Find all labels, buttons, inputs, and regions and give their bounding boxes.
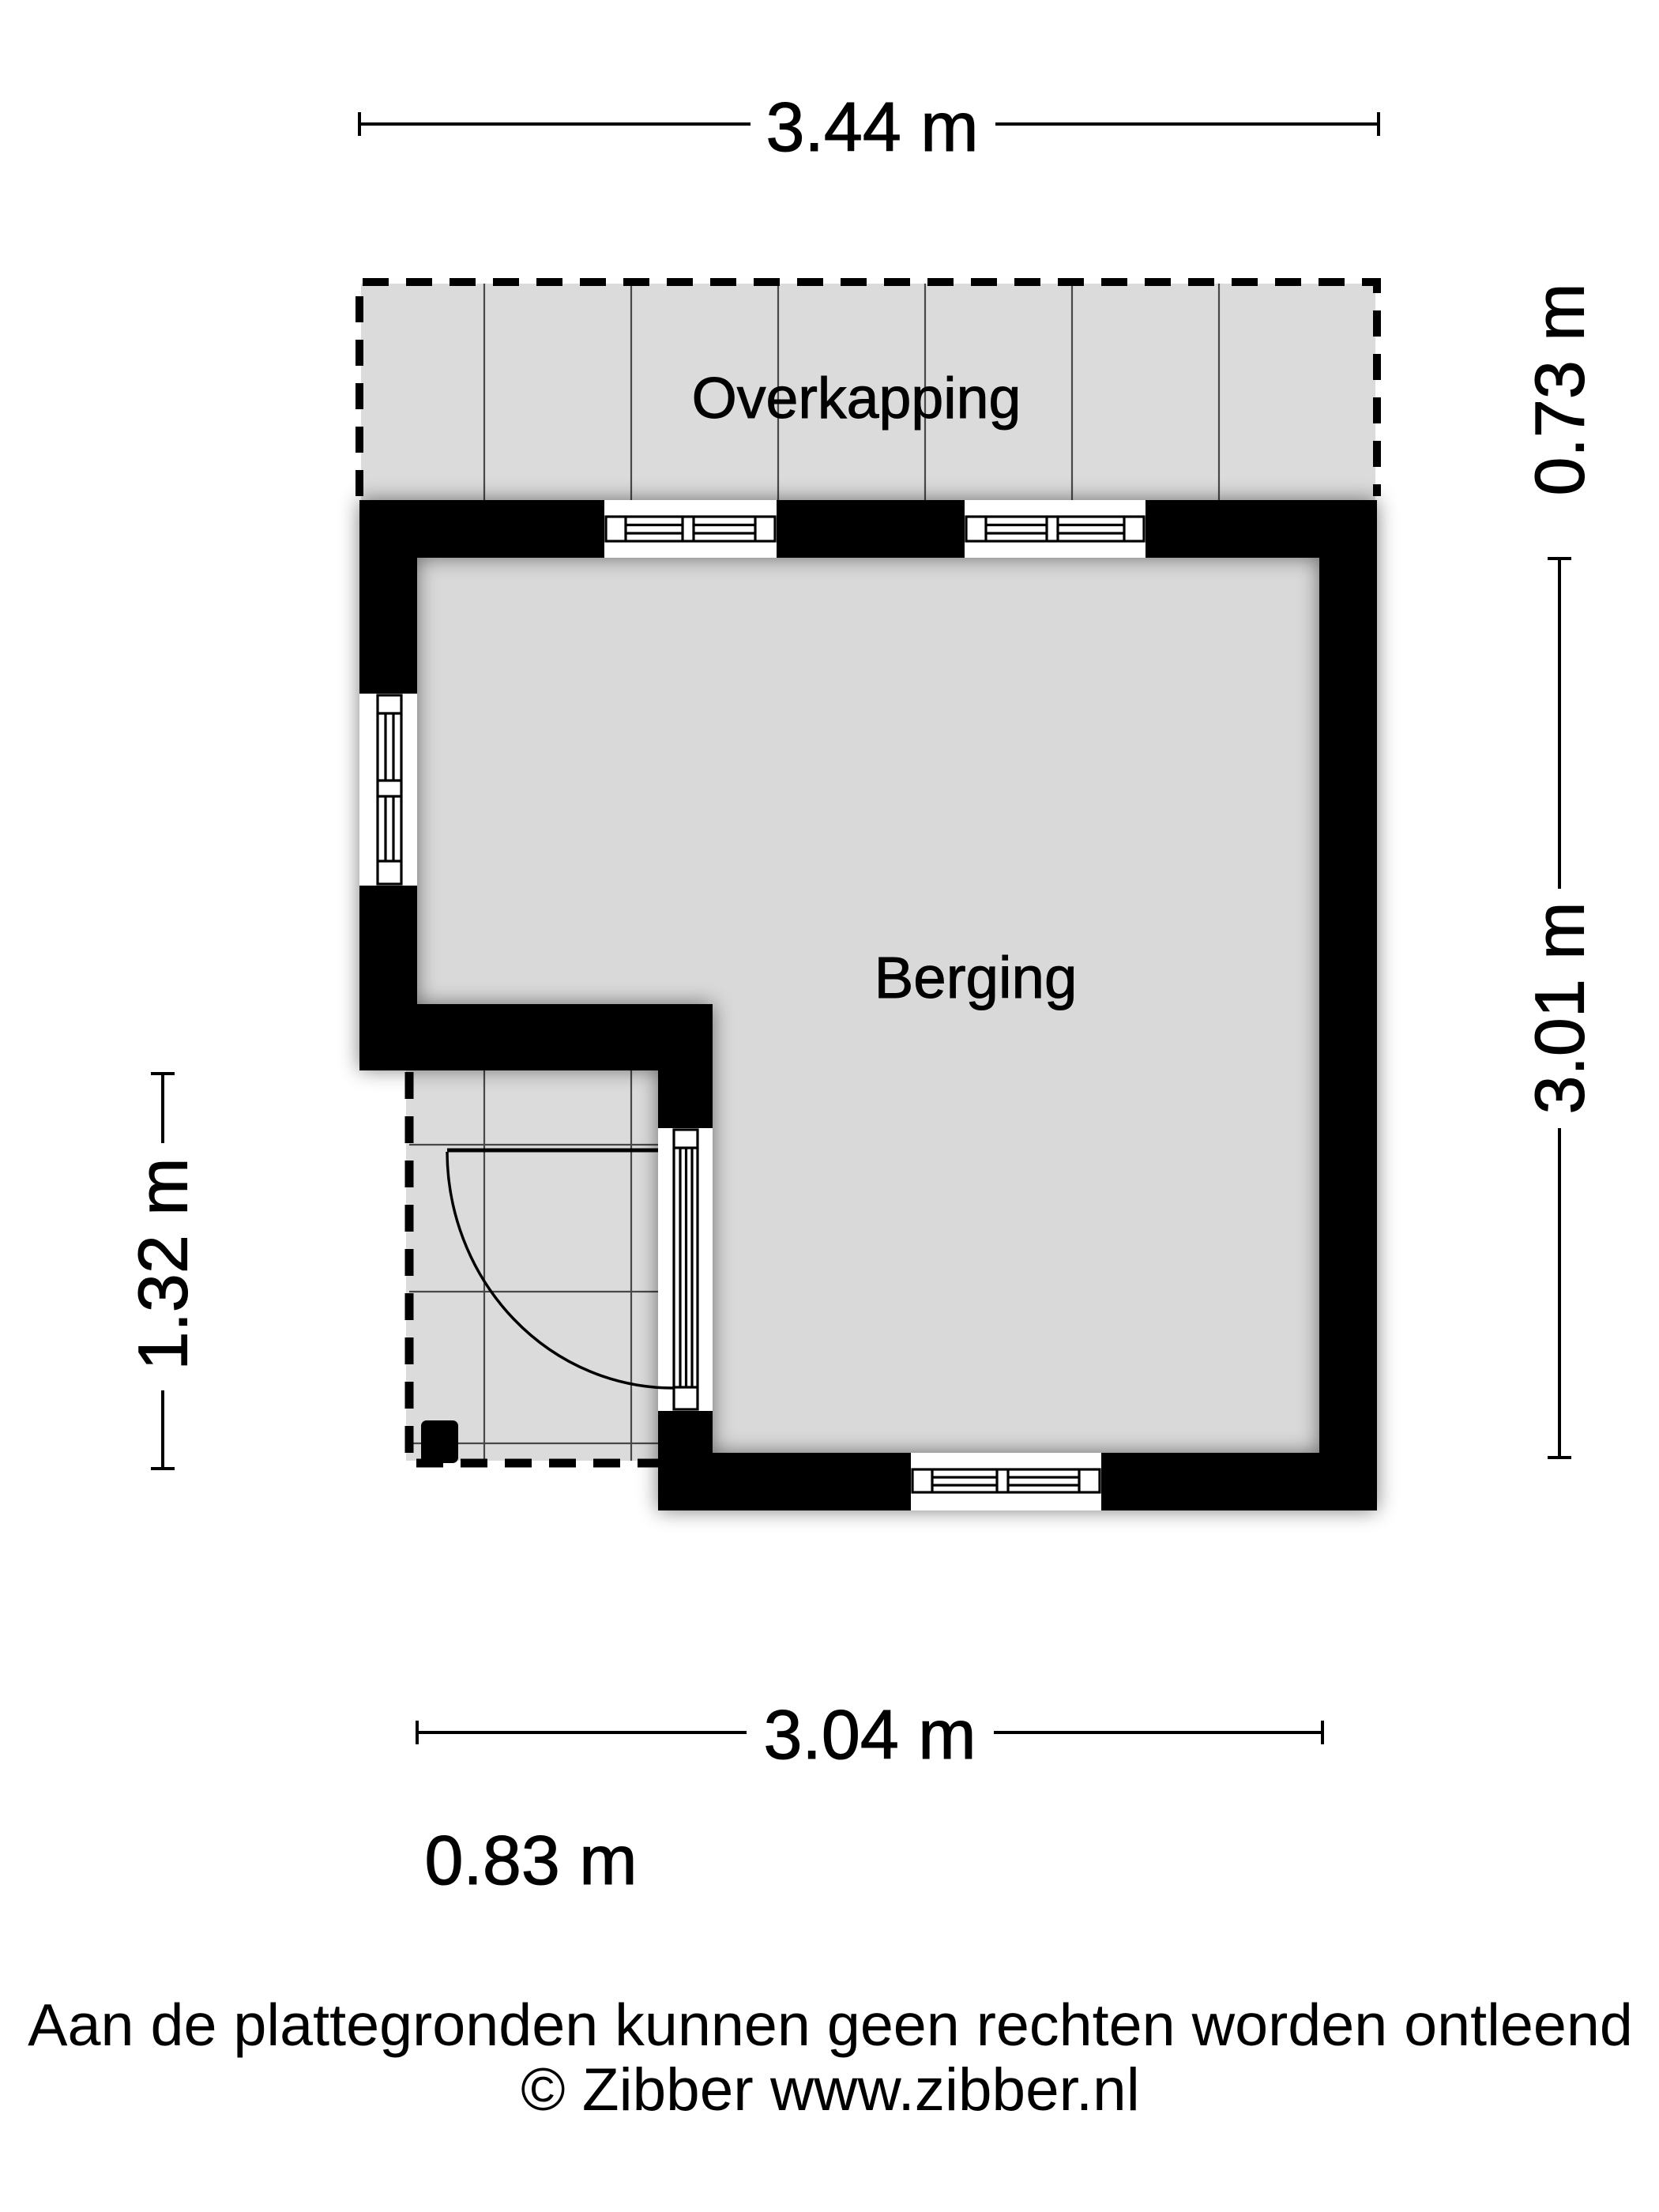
svg-text:3.44 m: 3.44 m [766, 88, 978, 166]
svg-text:1.32 m: 1.32 m [124, 1157, 202, 1370]
svg-text:0.73 m: 0.73 m [1521, 283, 1599, 495]
svg-text:© Zibber www.zibber.nl: © Zibber www.zibber.nl [521, 2056, 1139, 2124]
svg-text:Berging: Berging [875, 945, 1078, 1010]
svg-text:Overkapping: Overkapping [692, 365, 1021, 431]
svg-text:0.83 m: 0.83 m [424, 1821, 637, 1899]
svg-text:Aan de plattegronden kunnen ge: Aan de plattegronden kunnen geen rechten… [28, 1992, 1633, 2058]
svg-text:3.01 m: 3.01 m [1521, 901, 1599, 1114]
svg-text:3.04 m: 3.04 m [763, 1695, 976, 1774]
